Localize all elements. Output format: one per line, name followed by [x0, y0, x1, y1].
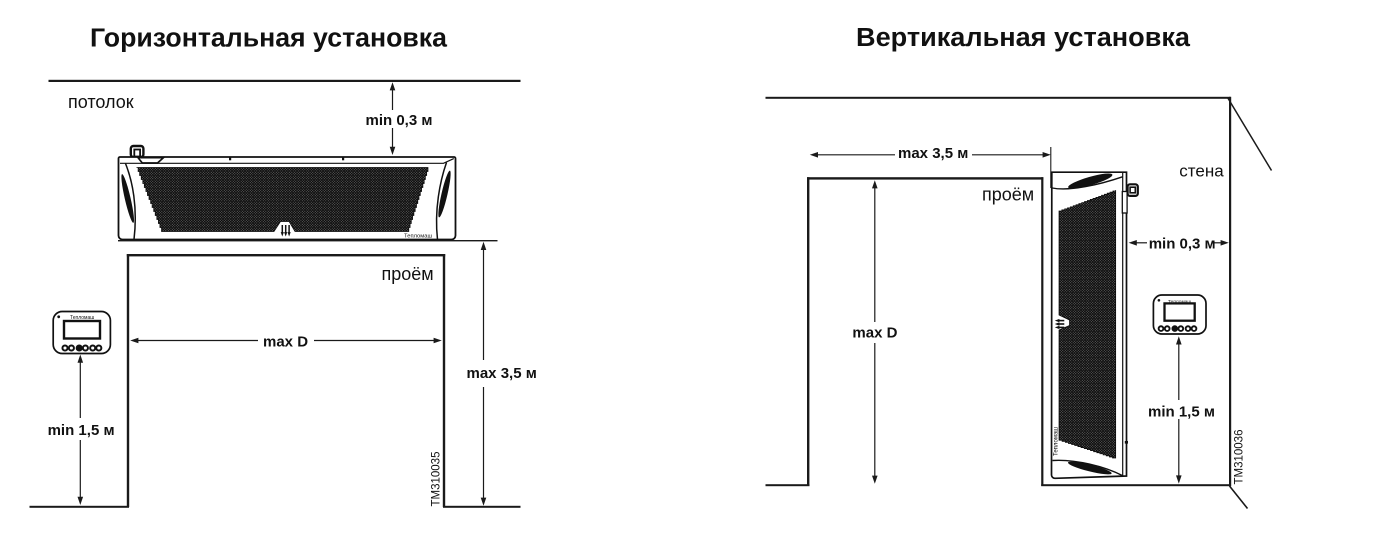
svg-text:max D: max D [263, 333, 308, 350]
svg-text:ТМ310036: ТМ310036 [1234, 430, 1246, 485]
svg-text:min 0,3 м: min 0,3 м [1149, 236, 1216, 253]
svg-text:max 3,5 м: max 3,5 м [467, 365, 537, 382]
svg-text:Тепломаш: Тепломаш [404, 234, 432, 240]
svg-text:max 3,5 м: max 3,5 м [898, 145, 968, 162]
svg-text:проём: проём [382, 264, 434, 284]
svg-text:min 0,3 м: min 0,3 м [366, 112, 433, 129]
svg-text:проём: проём [982, 185, 1034, 205]
svg-text:Вертикальная установка: Вертикальная установка [856, 24, 1191, 52]
svg-text:min 1,5 м: min 1,5 м [48, 422, 115, 439]
svg-text:Горизонтальная установка: Горизонтальная установка [90, 25, 448, 53]
svg-text:стена: стена [1179, 162, 1224, 181]
svg-text:min 1,5 м: min 1,5 м [1148, 403, 1215, 420]
svg-text:ТМ310035: ТМ310035 [431, 452, 443, 507]
svg-text:Тепломаш: Тепломаш [1054, 427, 1060, 456]
svg-text:max D: max D [852, 325, 897, 342]
svg-text:потолок: потолок [68, 92, 134, 112]
